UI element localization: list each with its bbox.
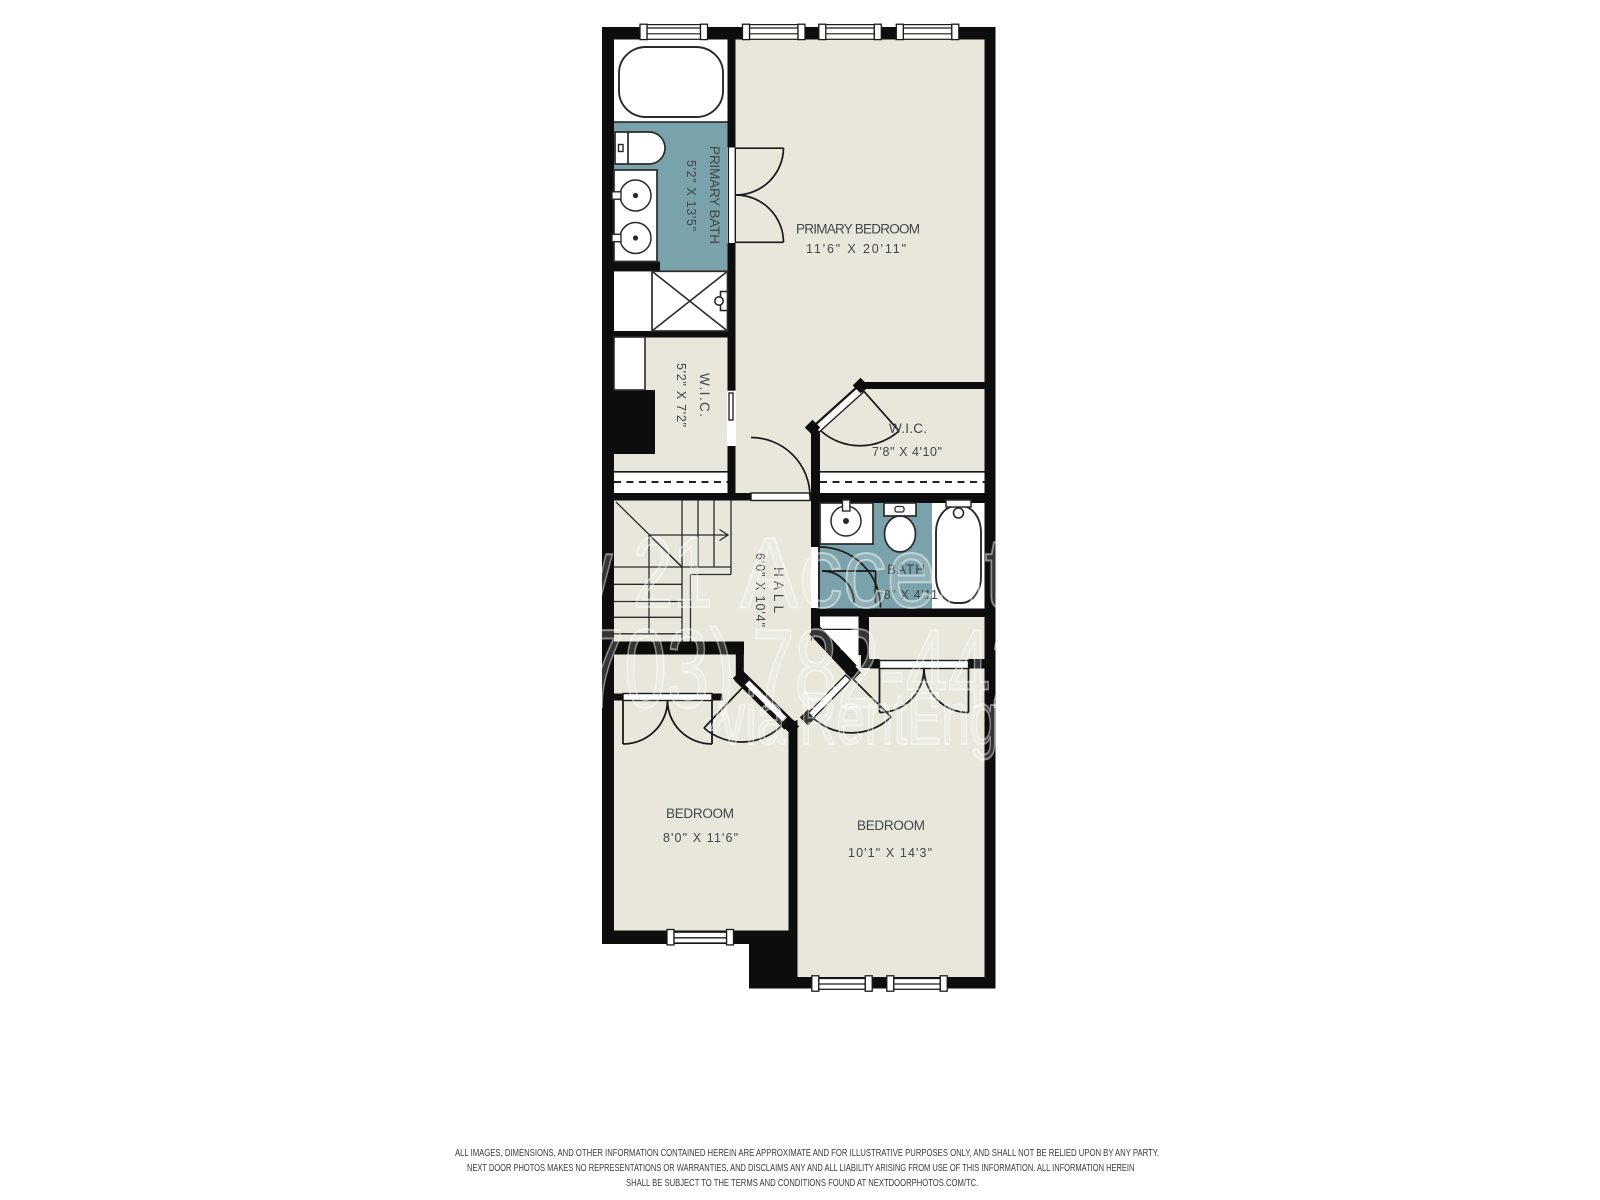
svg-text:(703): (703): [556, 608, 735, 731]
svg-text:ALL IMAGES, DIMENSIONS, AND OT: ALL IMAGES, DIMENSIONS, AND OTHER INFORM…: [455, 1147, 1159, 1158]
svg-text:W.I.C.: W.I.C.: [889, 421, 927, 436]
svg-text:via RentEngine: via RentEngine: [720, 678, 1066, 761]
svg-text:BEDROOM: BEDROOM: [857, 818, 925, 833]
svg-text:7'8" X 4'10": 7'8" X 4'10": [872, 445, 942, 459]
svg-text:W.I.C.: W.I.C.: [697, 373, 712, 417]
svg-text:PRIMARY BEDROOM: PRIMARY BEDROOM: [796, 222, 920, 237]
svg-text:5'2" X 13'5": 5'2" X 13'5": [684, 160, 698, 231]
svg-text:SHALL BE SUBJECT TO THE TERMS: SHALL BE SUBJECT TO THE TERMS AND CONDIT…: [626, 1177, 978, 1188]
svg-text:8'0" X 11'6": 8'0" X 11'6": [663, 831, 738, 845]
svg-text:5'2" X 7'2": 5'2" X 7'2": [674, 363, 688, 427]
svg-text:BEDROOM: BEDROOM: [666, 806, 734, 821]
svg-text:NEXT DOOR PHOTOS MAKES NO REPR: NEXT DOOR PHOTOS MAKES NO REPRESENTATION…: [467, 1162, 1134, 1174]
svg-text:10'1" X 14'3": 10'1" X 14'3": [848, 846, 932, 860]
svg-text:PRIMARY BATH: PRIMARY BATH: [707, 146, 722, 244]
